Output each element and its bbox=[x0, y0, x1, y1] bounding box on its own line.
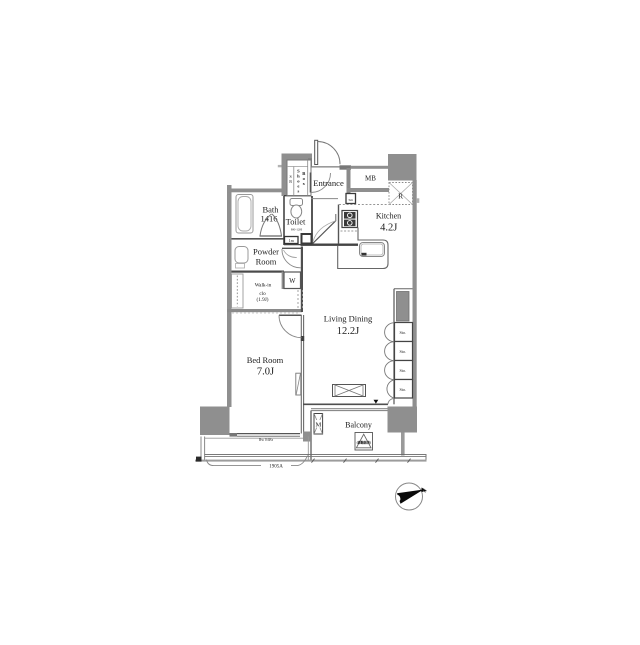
svg-text:Sto.: Sto. bbox=[399, 330, 406, 335]
svg-text:Rw 0.6Fa: Rw 0.6Fa bbox=[259, 438, 273, 442]
svg-text:900×1200: 900×1200 bbox=[291, 228, 303, 231]
svg-text:4.2J: 4.2J bbox=[380, 223, 397, 234]
svg-text:Entrance: Entrance bbox=[313, 178, 344, 188]
svg-text:Living Dining: Living Dining bbox=[324, 314, 373, 324]
svg-text:Bed Room: Bed Room bbox=[247, 355, 284, 365]
svg-text:R: R bbox=[398, 191, 403, 200]
svg-text:Balcony: Balcony bbox=[345, 421, 372, 430]
svg-text:(避難器具): (避難器具) bbox=[357, 440, 371, 445]
svg-text:Sm: Sm bbox=[349, 198, 354, 202]
svg-text:B: B bbox=[289, 179, 292, 184]
svg-text:(1.9J): (1.9J) bbox=[257, 296, 269, 303]
svg-text:Powder: Powder bbox=[253, 247, 279, 257]
svg-text:7.0J: 7.0J bbox=[257, 367, 274, 378]
svg-text:Sto.: Sto. bbox=[399, 387, 406, 392]
svg-text:s: s bbox=[298, 189, 300, 194]
svg-text:Walk-in: Walk-in bbox=[255, 283, 272, 289]
svg-text:Kitchen: Kitchen bbox=[376, 212, 401, 221]
svg-text:1m: 1m bbox=[289, 238, 295, 243]
svg-text:1905A: 1905A bbox=[269, 465, 283, 470]
svg-text:Sto.: Sto. bbox=[399, 368, 406, 373]
svg-text:MB: MB bbox=[365, 175, 376, 183]
svg-text:M: M bbox=[316, 422, 322, 429]
svg-text:12.2J: 12.2J bbox=[337, 326, 359, 337]
svg-text:1416: 1416 bbox=[261, 214, 278, 224]
svg-text:W: W bbox=[289, 278, 296, 285]
svg-text:Room: Room bbox=[256, 257, 277, 267]
svg-text:Sto.: Sto. bbox=[399, 349, 406, 354]
